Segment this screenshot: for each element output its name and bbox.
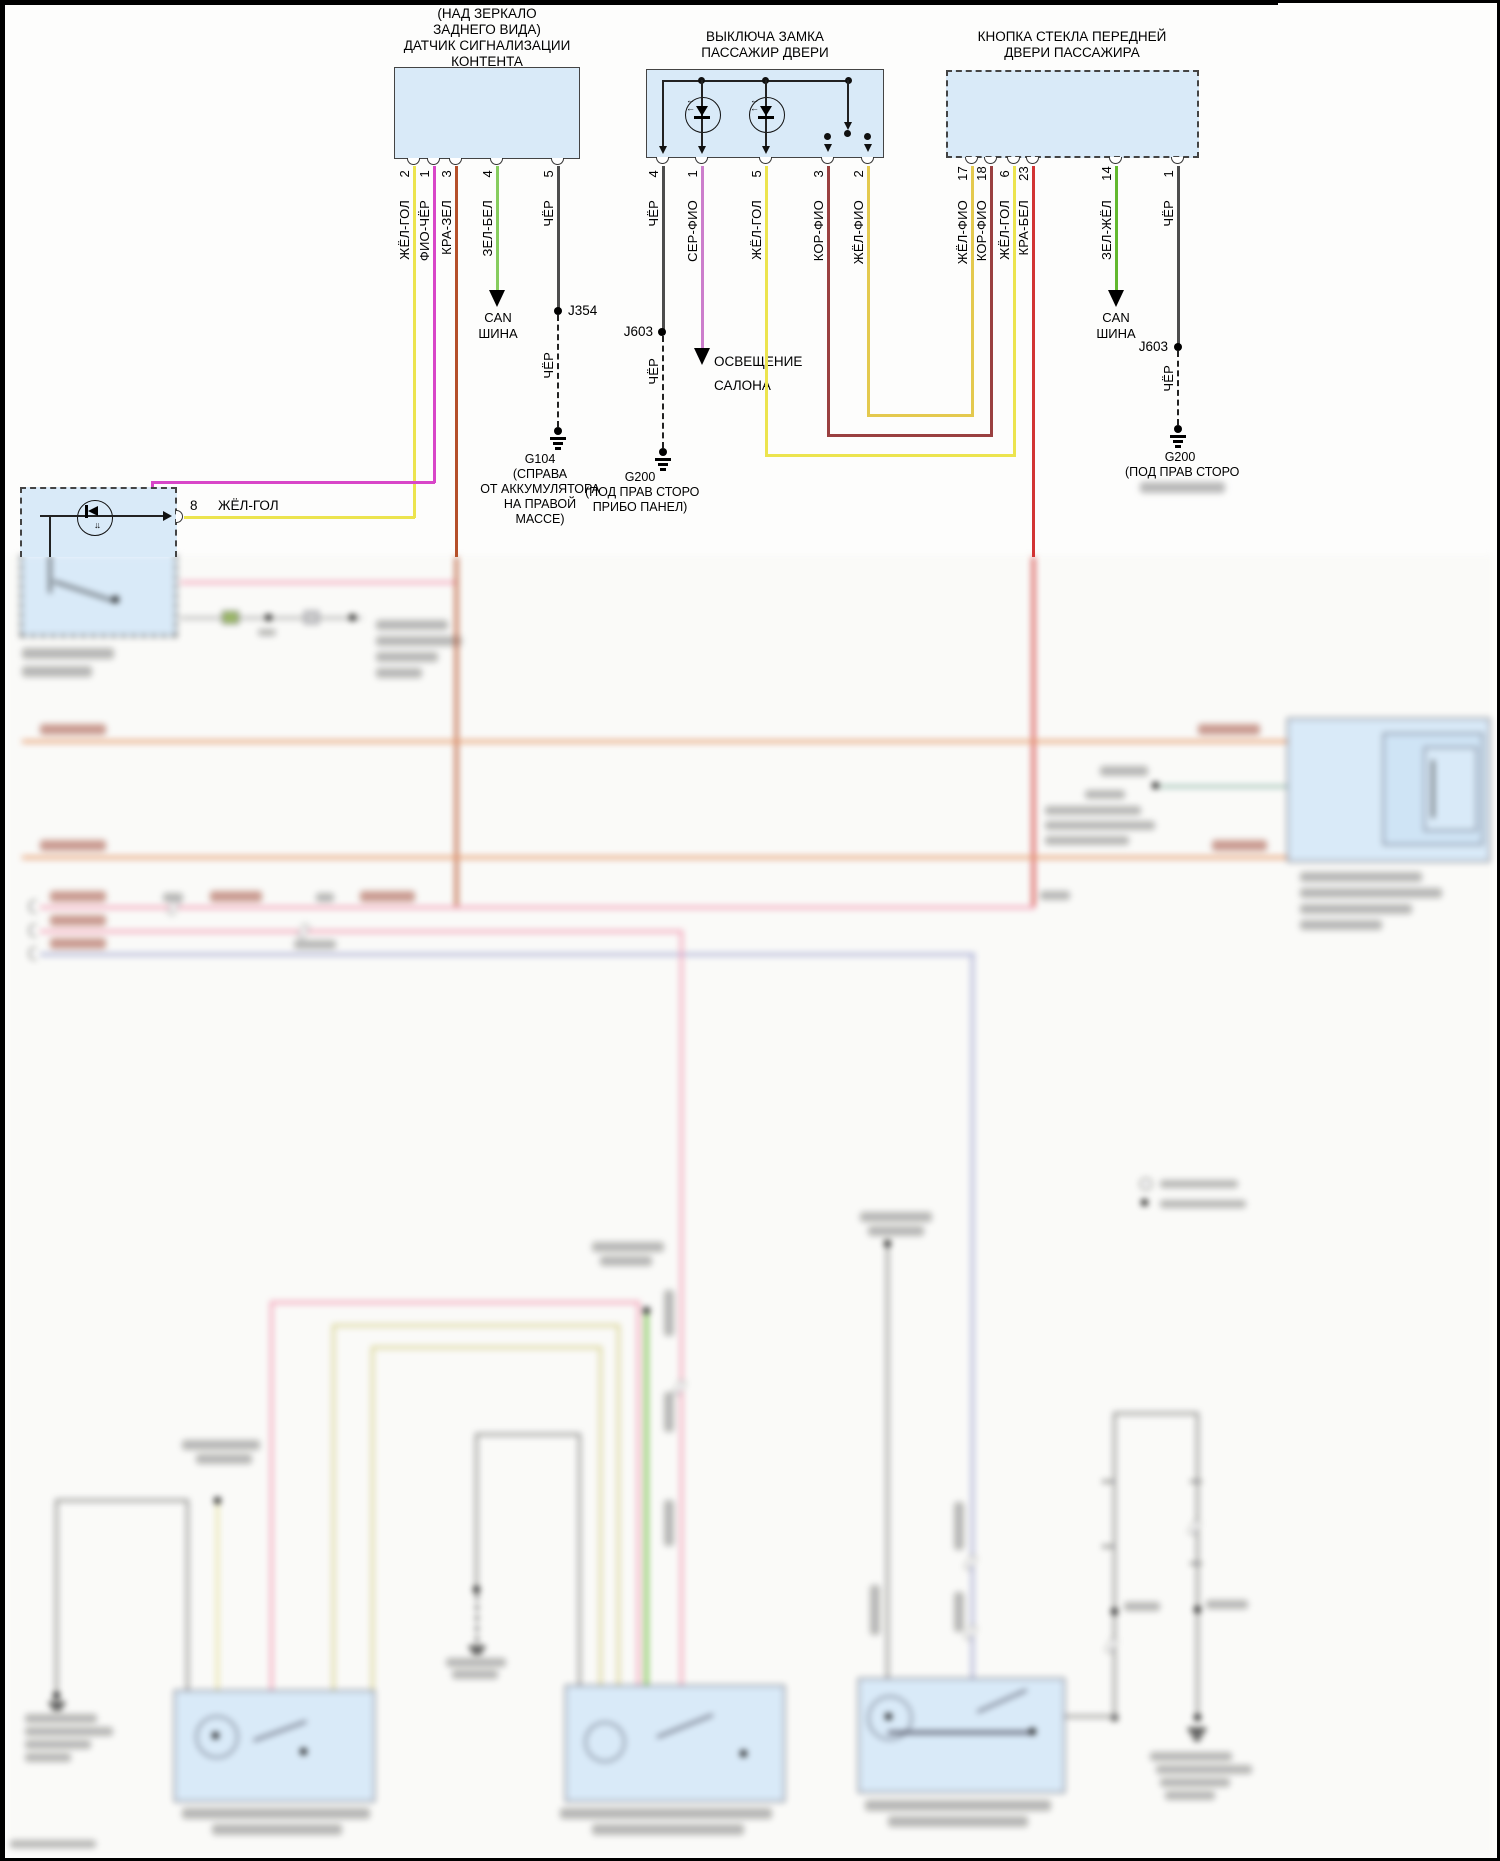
- ground-symbol: [469, 1646, 485, 1649]
- switch-dot: [824, 133, 831, 140]
- blurred-label: [592, 1242, 664, 1252]
- down-arrow: [824, 144, 832, 152]
- diode-triangle: [88, 506, 98, 516]
- lavender-row: [40, 953, 975, 956]
- blurred-legend-text: [1160, 1180, 1238, 1188]
- title-line: (НАД ЗЕРКАЛО: [357, 6, 617, 22]
- blurred-label: [1165, 1791, 1215, 1800]
- legend-open-circle: [1140, 1178, 1152, 1190]
- gray-feeder: [886, 1244, 889, 1680]
- gray-return-top: [55, 1499, 188, 1502]
- row-stub: [29, 924, 36, 937]
- blurred-label: [182, 1808, 370, 1819]
- g200-right-label: G200 (ПОД ПРАВ СТОРО: [1125, 450, 1235, 480]
- blurred-wire-label: [360, 891, 415, 902]
- wire-label: ЖЁЛ-ГОЛ: [218, 498, 279, 513]
- down-arrow: [762, 146, 770, 154]
- sensor-box: [394, 67, 580, 159]
- contact-dot: [1029, 1728, 1036, 1735]
- ground-symbol: [550, 437, 566, 440]
- blurred-wire-label: [664, 1500, 674, 1546]
- ground-symbol: [1194, 1738, 1200, 1741]
- khaki-arch2-right: [599, 1346, 602, 1687]
- junction-dot: [643, 1307, 650, 1314]
- led-arrows: ←←: [686, 96, 695, 112]
- gray-pair-top: [1113, 1412, 1199, 1415]
- connector-pin-line: [1432, 760, 1434, 818]
- window-button-title: КНОПКА СТЕКЛА ПЕРЕДНЕЙ ДВЕРИ ПАССАЖИРА: [940, 29, 1204, 61]
- can-bus-arrow: [1108, 290, 1124, 307]
- ground-desc: МАССЕ): [480, 512, 600, 527]
- kra-bel-wire: [1032, 166, 1035, 557]
- pin-number: 14: [1099, 166, 1114, 181]
- pink-arch-top: [270, 1301, 640, 1304]
- junction-dot: [265, 614, 272, 621]
- orange-wire-a: [22, 740, 1287, 743]
- zhel-fio-u-bottom: [867, 414, 974, 417]
- blurred-label: [25, 1740, 91, 1749]
- junction-j354-dot: [554, 307, 562, 315]
- gray-pair-right: [1196, 1412, 1199, 1719]
- diode-triangle: [760, 106, 772, 116]
- ground-name: G104: [480, 452, 600, 467]
- ground-desc: (СПРАВА: [480, 467, 600, 482]
- window-button-box: [946, 70, 1199, 158]
- wire-label: ЧЁР: [646, 200, 661, 227]
- switch-internal: [847, 80, 849, 126]
- ground-dot: [1174, 425, 1182, 433]
- blurred-label: [376, 652, 438, 662]
- junction-dot: [884, 1240, 891, 1247]
- g104-label: G104 (СПРАВА ОТ АККУМУЛЯТОРА НА ПРАВОЙ М…: [480, 452, 600, 527]
- diode-bar: [694, 116, 710, 119]
- inline-component: [304, 611, 319, 624]
- wire-label: СЕР-ФИО: [685, 200, 700, 262]
- pin-number: 6: [997, 170, 1012, 177]
- zhel-fio-u-left: [867, 166, 870, 417]
- pink-wire: [180, 581, 456, 584]
- blurred-label: [376, 620, 448, 630]
- lock-switch-title: ВЫКЛЮЧА ЗАМКА ПАССАЖИР ДВЕРИ: [645, 29, 885, 61]
- blurred-label: [1045, 836, 1129, 845]
- contact-dot: [740, 1750, 747, 1757]
- wire-label: ЧЁР: [541, 200, 556, 227]
- wire-label: ЧЁР: [646, 358, 661, 385]
- blurred-label: [182, 1440, 260, 1450]
- tick: [1102, 1480, 1114, 1483]
- tick: [1190, 1562, 1202, 1565]
- down-arrow: [698, 146, 706, 154]
- switch-dot: [844, 130, 851, 137]
- dashed-ground-wire: [476, 1594, 478, 1642]
- module-internal-wire: [49, 555, 51, 593]
- ground-dot: [659, 448, 667, 456]
- right-arrow: [163, 511, 172, 521]
- ground-symbol: [555, 447, 561, 450]
- zhel-gol-wire: [413, 166, 416, 518]
- ground-desc: (ПОД ПРАВ СТОРО: [1125, 465, 1235, 480]
- wire-label: ЧЁР: [1161, 200, 1176, 227]
- blurred-label: [1124, 1602, 1160, 1611]
- down-arrow: [844, 122, 852, 130]
- pin-number: 17: [955, 166, 970, 181]
- module-internal-line: [49, 515, 51, 557]
- junction-j603-dot: [1174, 343, 1182, 351]
- tick: [1190, 1480, 1202, 1483]
- blurred-g200-line: [1140, 482, 1225, 493]
- wire-label: ЖЁЛ-ФИО: [851, 200, 866, 264]
- pin-number: 4: [646, 170, 661, 177]
- blurred-label: [25, 1727, 113, 1736]
- pin-number: 1: [1161, 170, 1176, 177]
- blurred-label: [1206, 1600, 1248, 1609]
- blurred-wire-label: [50, 915, 106, 926]
- blurred-label: [376, 668, 422, 678]
- blurred-label: [446, 1658, 506, 1667]
- cher-wire: [662, 166, 665, 332]
- pin-number: 1: [685, 170, 700, 177]
- cher-wire: [1177, 166, 1180, 347]
- cher-wire: [557, 166, 560, 311]
- motor-dot: [212, 1732, 219, 1739]
- gray-arch-right: [578, 1433, 581, 1687]
- diode-bar: [758, 116, 774, 119]
- title-line: ДАТЧИК СИГНАЛИЗАЦИИ: [357, 38, 617, 54]
- zel-bel-wire: [496, 166, 499, 292]
- ground-symbol: [49, 1702, 65, 1705]
- g200-mid-label: G200 (ПОД ПРАВ СТОРО ПРИБО ПАНЕЛ): [585, 470, 695, 515]
- khaki-arch1-right: [617, 1324, 620, 1687]
- junction-j603-dot: [658, 328, 666, 336]
- gray-return-right: [186, 1499, 189, 1692]
- lavender-feeder: [971, 953, 974, 1680]
- wire-label: КОР-ФИО: [811, 200, 826, 261]
- ground-symbol: [1170, 435, 1186, 438]
- down-arrow: [659, 146, 667, 154]
- cher-dashed: [662, 336, 664, 448]
- blurred-wire-label: [1198, 724, 1260, 735]
- title-line: ДВЕРИ ПАССАЖИРА: [940, 45, 1204, 61]
- junction-dot: [1111, 1608, 1118, 1615]
- ground-symbol: [1191, 1733, 1203, 1736]
- page-border-top: [0, 0, 1278, 5]
- ground-desc: ПРИБО ПАНЕЛ): [585, 500, 695, 515]
- khaki-arch2-top: [371, 1346, 602, 1349]
- blurred-label: [25, 1714, 97, 1723]
- j354-label: J354: [568, 303, 597, 318]
- blurred-wire-label: [1212, 840, 1267, 851]
- wire-label: ЖЁЛ-ГОЛ: [397, 200, 412, 260]
- gray-return-left: [55, 1499, 58, 1695]
- blurred-label: [1040, 891, 1070, 900]
- can-line: ШИНА: [460, 326, 536, 342]
- blurred-wire-label: [210, 891, 262, 902]
- cabin-light-label: ОСВЕЩЕНИЕ САЛОНА: [714, 350, 802, 398]
- wire-label: ЗЕЛ-БЕЛ: [480, 200, 495, 257]
- junction-dot: [349, 614, 356, 621]
- blurred-label: [1160, 1778, 1230, 1787]
- switch-dot: [864, 133, 871, 140]
- ground-symbol: [1175, 445, 1181, 448]
- fio-cher-wire: [433, 166, 436, 483]
- blurred-label: [868, 1226, 924, 1236]
- blurred-label: [1085, 790, 1125, 799]
- motor-dot: [885, 1713, 892, 1720]
- pin-number: 8: [190, 498, 198, 513]
- gray-arch-left: [475, 1433, 478, 1590]
- pink-row-2: [40, 930, 683, 933]
- inline-component: [222, 611, 239, 624]
- blurred-label: [294, 940, 336, 949]
- pin-number: 4: [480, 170, 495, 177]
- blurred-label: [316, 893, 334, 902]
- blur-haze: [8, 556, 1492, 1853]
- teal-wire: [1160, 785, 1287, 788]
- pin-number: 2: [851, 170, 866, 177]
- junction-dot: [1194, 1606, 1201, 1613]
- orange-wire-b: [22, 856, 1287, 859]
- pink-feeder: [680, 930, 683, 1687]
- wire-label: ЗЕЛ-ЖЁЛ: [1099, 200, 1114, 260]
- pin-number: 5: [541, 170, 556, 177]
- blurred-wire-label: [954, 1592, 964, 1632]
- title-line: ВЫКЛЮЧА ЗАМКА: [645, 29, 885, 45]
- zhel-gol-u-left: [765, 166, 768, 457]
- module-contact-dot: [112, 596, 119, 603]
- wire-label: ЖЁЛ-ГОЛ: [749, 200, 764, 260]
- junction-dot: [1194, 1714, 1201, 1721]
- blurred-label: [1156, 1765, 1252, 1774]
- blurred-wire-label: [870, 1585, 880, 1635]
- wire-label: КРА-ЗЕЛ: [439, 200, 454, 255]
- motor-symbol: [585, 1722, 625, 1762]
- blurred-label: [865, 1800, 1051, 1811]
- ground-dot: [53, 1692, 60, 1699]
- khaki-arch2-left: [371, 1346, 374, 1692]
- cabin-light-line: САЛОНА: [714, 374, 802, 398]
- blurred-wire-label: [40, 724, 106, 735]
- ground-symbol: [553, 442, 563, 445]
- ground-symbol: [472, 1651, 482, 1654]
- kor-fio-u-right: [990, 166, 993, 437]
- contact-dot: [300, 1748, 307, 1755]
- internal-line: [888, 1731, 1035, 1734]
- ground-dot: [554, 427, 562, 435]
- title-line: ЗАДНЕГО ВИДА): [357, 22, 617, 38]
- zhel-gol-wire-h: [184, 516, 415, 519]
- zhel-gol-u-bottom: [765, 454, 1016, 457]
- pin4-internal: [662, 80, 664, 148]
- cher-dashed: [1177, 351, 1179, 425]
- blurred-label: [888, 1816, 1028, 1827]
- pin-number: 5: [749, 170, 764, 177]
- blurred-label: [1150, 1752, 1232, 1761]
- blurred-label: [1045, 821, 1155, 830]
- kor-fio-u-left: [827, 166, 830, 437]
- wire-label: КОР-ФИО: [974, 200, 989, 261]
- blurred-label: [600, 1256, 652, 1266]
- ground-desc: НА ПРАВОЙ: [480, 497, 600, 512]
- blurred-wire-label: [954, 1502, 964, 1550]
- wire-label: КРА-БЕЛ: [1016, 200, 1031, 256]
- ground-symbol: [655, 458, 671, 461]
- blurred-label: [860, 1212, 932, 1222]
- pink-row-1: [40, 906, 1035, 909]
- can-bus-arrow: [489, 290, 505, 307]
- blurred-label: [22, 648, 114, 659]
- blurred-label: [376, 636, 462, 646]
- led-arrows: ↓↓: [94, 520, 99, 530]
- cher-dashed: [557, 315, 559, 427]
- blurred-label: [1300, 888, 1442, 898]
- ground-symbol: [1173, 440, 1183, 443]
- junction-dot: [473, 1586, 480, 1593]
- blurred-label: [592, 1824, 744, 1835]
- ground-name: G200: [1125, 450, 1235, 465]
- pin-number: 3: [439, 170, 454, 177]
- blurred-label: [196, 1454, 252, 1464]
- blurred-wire-label: [50, 938, 106, 949]
- down-arrow: [864, 144, 872, 152]
- internal-rail: [662, 80, 849, 82]
- ground-desc: ОТ АККУМУЛЯТОРА: [480, 482, 600, 497]
- blurred-wire-label: [50, 891, 106, 902]
- blurred-label: [258, 629, 276, 636]
- ground-desc: (ПОД ПРАВ СТОРО: [585, 485, 695, 500]
- pin-number: 3: [811, 170, 826, 177]
- junction-dot: [214, 1497, 221, 1504]
- blurred-footer-code: [10, 1840, 96, 1848]
- gray-arch-top: [475, 1433, 581, 1436]
- pink-arch-right: [637, 1301, 640, 1687]
- pin-number: 2: [397, 170, 412, 177]
- fio-cher-wire-h: [151, 481, 435, 484]
- wire-label: ЧЁР: [541, 352, 556, 379]
- ser-fio-wire: [701, 166, 704, 350]
- led-arrows: ←←: [750, 96, 759, 112]
- khaki-arch1-left: [332, 1324, 335, 1692]
- wire-label: ЖЁЛ-ФИО: [955, 200, 970, 264]
- pin-number: 1: [417, 170, 432, 177]
- legend-filled-circle: [1141, 1199, 1148, 1206]
- j603-label: J603: [601, 324, 653, 339]
- green-feeder: [645, 1311, 648, 1687]
- blurred-wire-label: [40, 840, 106, 851]
- tick: [1102, 1545, 1114, 1548]
- blurred-label: [1100, 766, 1148, 776]
- ground-symbol: [1188, 1728, 1206, 1731]
- title-line: ПАССАЖИР ДВЕРИ: [645, 45, 885, 61]
- pin-number: 18: [974, 166, 989, 181]
- kor-fio-u-bottom: [827, 434, 993, 437]
- ground-symbol: [658, 463, 668, 466]
- stub-to-box: [1060, 1715, 1116, 1718]
- ground-name: G200: [585, 470, 695, 485]
- blurred-wire-label: [664, 1392, 674, 1432]
- blurred-label: [560, 1808, 772, 1819]
- title-line: КНОПКА СТЕКЛА ПЕРЕДНЕЙ: [940, 29, 1204, 45]
- page-border-left: [0, 0, 5, 1861]
- wire-label: ЧЁР: [1161, 365, 1176, 392]
- blurred-label: [22, 666, 92, 677]
- pin-number: 23: [1016, 166, 1031, 181]
- blurred-label: [1300, 872, 1422, 882]
- blurred-label: [212, 1824, 342, 1835]
- blurred-label: [1300, 904, 1412, 914]
- wire-label: ЖЁЛ-ГОЛ: [997, 200, 1012, 260]
- blurred-wire-label: [664, 1290, 674, 1336]
- pink-arch-left: [270, 1301, 273, 1693]
- blurred-label: [1300, 920, 1382, 930]
- cabin-light-line: ОСВЕЩЕНИЕ: [714, 350, 802, 374]
- row-stub: [29, 900, 36, 913]
- wiring-diagram-page: (НАД ЗЕРКАЛО ЗАДНЕГО ВИДА) ДАТЧИК СИГНАЛ…: [0, 0, 1500, 1861]
- ground-symbol: [52, 1707, 62, 1710]
- zel-zhel-wire: [1115, 166, 1118, 292]
- sensor-title: (НАД ЗЕРКАЛО ЗАДНЕГО ВИДА) ДАТЧИК СИГНАЛ…: [357, 6, 617, 70]
- module-internal-line: [40, 515, 169, 517]
- cabin-light-arrow: [694, 348, 710, 365]
- can-line: CAN: [1078, 310, 1154, 326]
- gray-pair-left: [1113, 1412, 1116, 1719]
- blurred-diagram-region: [0, 0, 1500, 1861]
- can-bus-label: CAN ШИНА: [460, 310, 536, 342]
- junction-dot: [1152, 782, 1159, 789]
- blurred-label: [25, 1753, 71, 1762]
- diode-triangle: [696, 106, 708, 116]
- row-stub: [29, 947, 36, 960]
- blurred-legend-text: [1160, 1200, 1246, 1208]
- j603-label: J603: [1116, 339, 1168, 354]
- yellow-feeder: [216, 1501, 219, 1693]
- can-line: CAN: [460, 310, 536, 326]
- blurred-label: [452, 1670, 498, 1679]
- blurred-label: [1045, 806, 1141, 815]
- wire-label: ФИО-ЧЁР: [417, 200, 432, 261]
- khaki-arch1-top: [332, 1324, 620, 1327]
- can-bus-label: CAN ШИНА: [1078, 310, 1154, 342]
- kra-zel-wire: [455, 166, 458, 557]
